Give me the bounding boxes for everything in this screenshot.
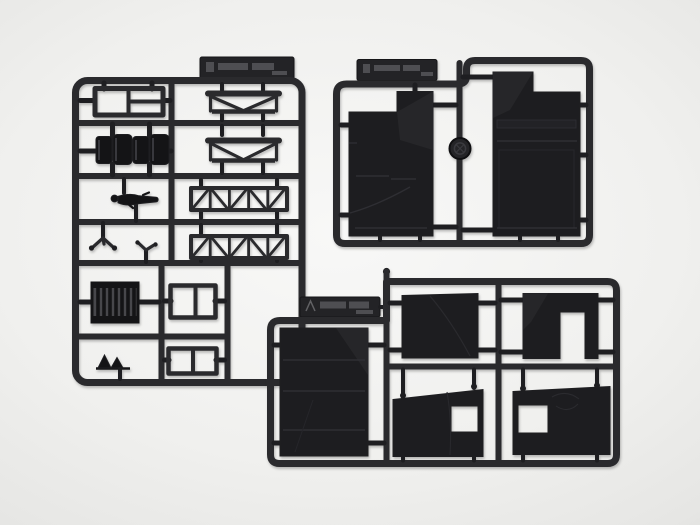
part-side-panel-left <box>341 85 456 240</box>
part-wall-panel-doorway <box>501 294 613 359</box>
part-wall-panel-large <box>274 328 384 456</box>
part-side-panel-right <box>463 72 586 240</box>
part-window-frame-pair-2 <box>165 349 225 374</box>
part-window-frame-3pane <box>80 83 170 115</box>
part-hub-cap <box>450 138 471 159</box>
part-girder-truss-2 <box>191 225 287 261</box>
part-crew-figure <box>111 179 158 221</box>
seat-2 <box>133 135 169 165</box>
maker-tag-b <box>357 60 437 81</box>
photo-background <box>0 0 700 525</box>
part-window-panel-left <box>393 370 483 461</box>
part-window-frame-pair-1 <box>165 286 225 318</box>
part-seats <box>80 124 171 175</box>
maker-tag-c <box>300 297 384 317</box>
maker-tag-a <box>200 57 294 80</box>
part-mirror-arm-2 <box>135 240 157 262</box>
part-radiator-grille <box>80 283 159 322</box>
sprue-b <box>337 60 590 244</box>
seat-1 <box>96 135 132 165</box>
part-roof-truss-1 <box>208 84 279 120</box>
sprue-c <box>271 268 617 464</box>
sprue-photo <box>0 0 700 525</box>
part-girder-truss-1 <box>191 180 287 218</box>
part-terrain-wedges <box>96 355 130 379</box>
part-window-panel-right <box>513 370 610 461</box>
part-mirror-arm-1 <box>89 223 117 251</box>
part-wall-panel-plain <box>390 294 495 359</box>
part-roof-truss-2 <box>208 126 279 173</box>
